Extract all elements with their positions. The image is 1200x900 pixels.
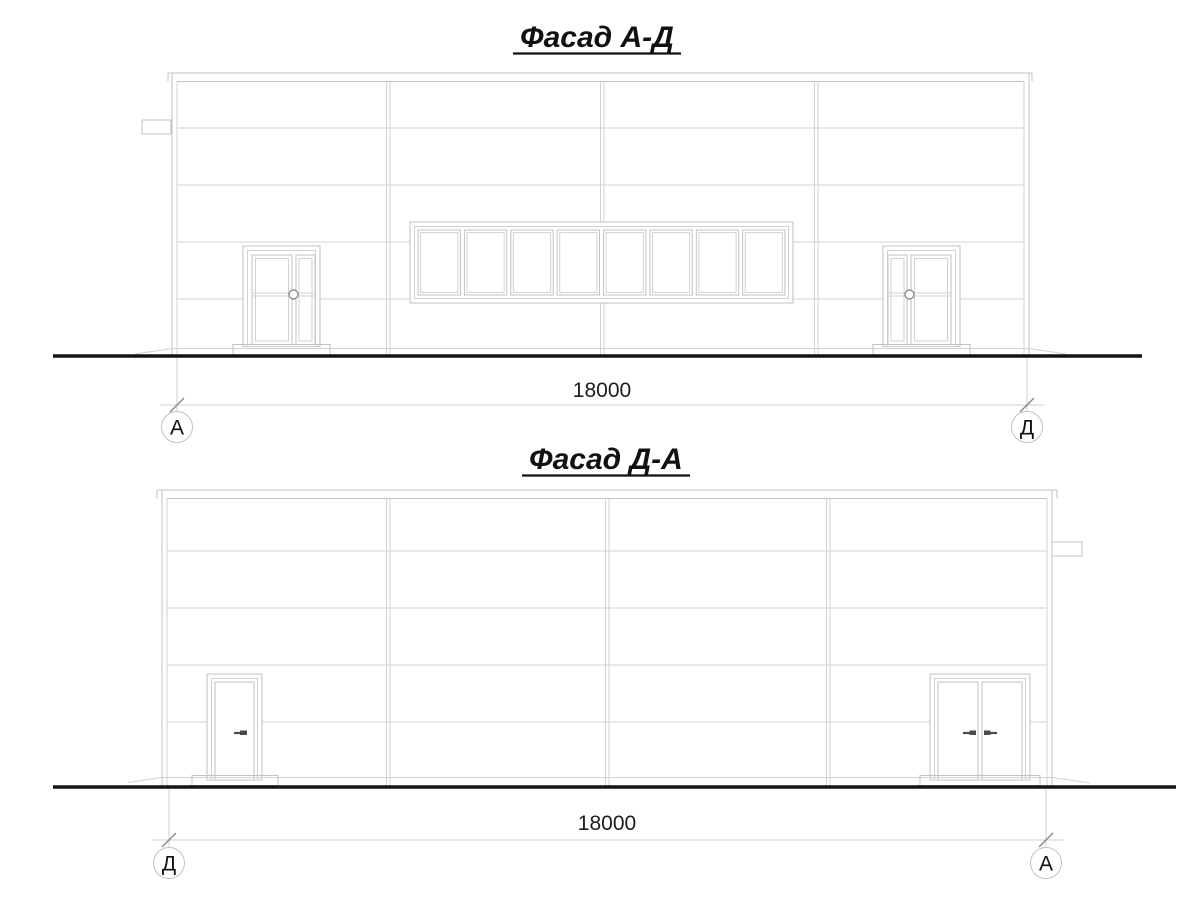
axis-label: А xyxy=(170,417,184,440)
axis-marker-top-right: Д xyxy=(1012,412,1043,443)
axis-marker-bottom-left: Д xyxy=(154,848,185,879)
scupper-outlet-right xyxy=(1052,542,1082,556)
door-right-top xyxy=(883,246,960,347)
axis-label: Д xyxy=(1020,417,1034,440)
window-band xyxy=(410,222,793,303)
dimension-value-top: 18000 xyxy=(573,379,631,402)
door-left-bottom xyxy=(207,674,262,780)
scupper-outlet-left xyxy=(142,120,171,134)
ramp-right xyxy=(1052,778,1090,784)
door-left-top xyxy=(243,246,320,347)
ramp-left xyxy=(128,778,162,783)
door-handle xyxy=(240,731,247,736)
drawing-canvas: Фасад А-Д xyxy=(0,0,1200,900)
axis-label: А xyxy=(1039,853,1053,876)
building-outline-bottom xyxy=(157,490,1057,786)
door-handle xyxy=(289,290,298,299)
facade-a-d: Фасад А-Д xyxy=(53,21,1142,443)
door-frame xyxy=(930,674,1030,780)
ramp-left xyxy=(135,349,172,355)
door-handle xyxy=(984,731,991,736)
dimension-value-bottom: 18000 xyxy=(578,812,636,835)
facade-d-a-title: Фасад Д-А xyxy=(529,443,683,476)
axis-marker-top-left: А xyxy=(162,412,193,443)
elevation-sheet: Фасад А-Д xyxy=(0,0,1200,900)
axis-label: Д xyxy=(162,853,176,876)
door-right-bottom xyxy=(930,674,1030,780)
panel-joints-horizontal-bottom xyxy=(167,551,1047,722)
facade-d-a: Фасад Д-А xyxy=(53,443,1176,879)
facade-a-d-title: Фасад А-Д xyxy=(520,21,674,54)
dimension-top: 18000 xyxy=(160,358,1044,413)
ramp-right xyxy=(1029,349,1066,355)
door-handle xyxy=(905,290,914,299)
dimension-bottom: 18000 xyxy=(152,789,1064,848)
panel-joints-vertical-top xyxy=(387,82,819,356)
panel-joints-vertical-bottom xyxy=(387,499,831,787)
axis-marker-bottom-right: А xyxy=(1031,848,1062,879)
door-handle xyxy=(970,731,977,736)
